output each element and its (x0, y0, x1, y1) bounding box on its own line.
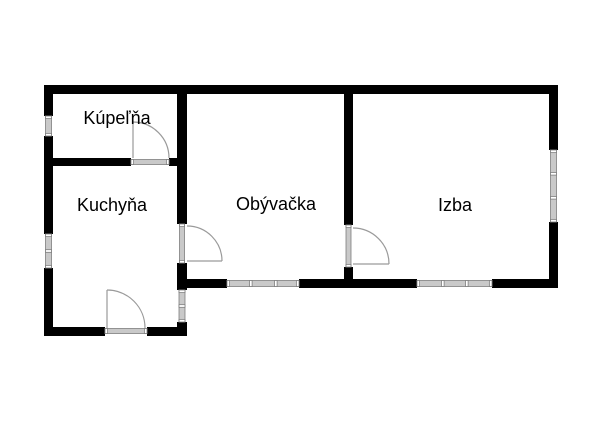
window-izba-right (551, 150, 557, 222)
wall-kitchen-right-corner (177, 322, 187, 336)
door-kitchen-living-arc (187, 226, 222, 261)
room-label-bathroom: Kúpeľňa (83, 108, 151, 128)
wall-left-middle (44, 136, 53, 234)
wall-divider-bathroom-left (53, 158, 131, 166)
door-kitchen-living (180, 224, 223, 263)
wall-top (44, 85, 558, 94)
wall-divider-izba-upper (344, 94, 353, 225)
wall-bottom-izba-right (492, 279, 558, 288)
window-bathroom-left (46, 116, 52, 136)
wall-divider-izba-lower (344, 267, 353, 288)
wall-left-upper (44, 85, 53, 116)
window-izba-bottom (417, 281, 492, 287)
wall-bottom-kitchen-left (44, 327, 105, 336)
wall-divider-center-lower (177, 263, 187, 288)
room-label-living-room: Obývačka (236, 194, 317, 214)
wall-divider-center-upper (177, 94, 187, 224)
window-kitchen-left (46, 234, 52, 268)
floor-plan: Kúpeľňa Kuchyňa Obývačka Izba (0, 0, 600, 426)
door-living-izba (346, 225, 389, 267)
wall-divider-bathroom-right (169, 158, 177, 166)
wall-left-lower (44, 268, 53, 336)
floor-plan-drawing: Kúpeľňa Kuchyňa Obývačka Izba (0, 0, 600, 426)
window-living-bottom (227, 281, 299, 287)
room-label-izba: Izba (438, 195, 473, 215)
door-living-izba-arc (353, 228, 389, 264)
wall-bottom-living-center (299, 279, 417, 288)
door-kitchen-bottom (105, 290, 147, 334)
door-kitchen-bottom-arc (107, 290, 145, 328)
window-kitchen-right (179, 290, 185, 322)
wall-right-upper (549, 85, 558, 150)
wall-right-lower (549, 222, 558, 288)
room-label-kitchen: Kuchyňa (77, 195, 148, 215)
door-bathroom (131, 122, 169, 165)
windows (46, 116, 557, 322)
